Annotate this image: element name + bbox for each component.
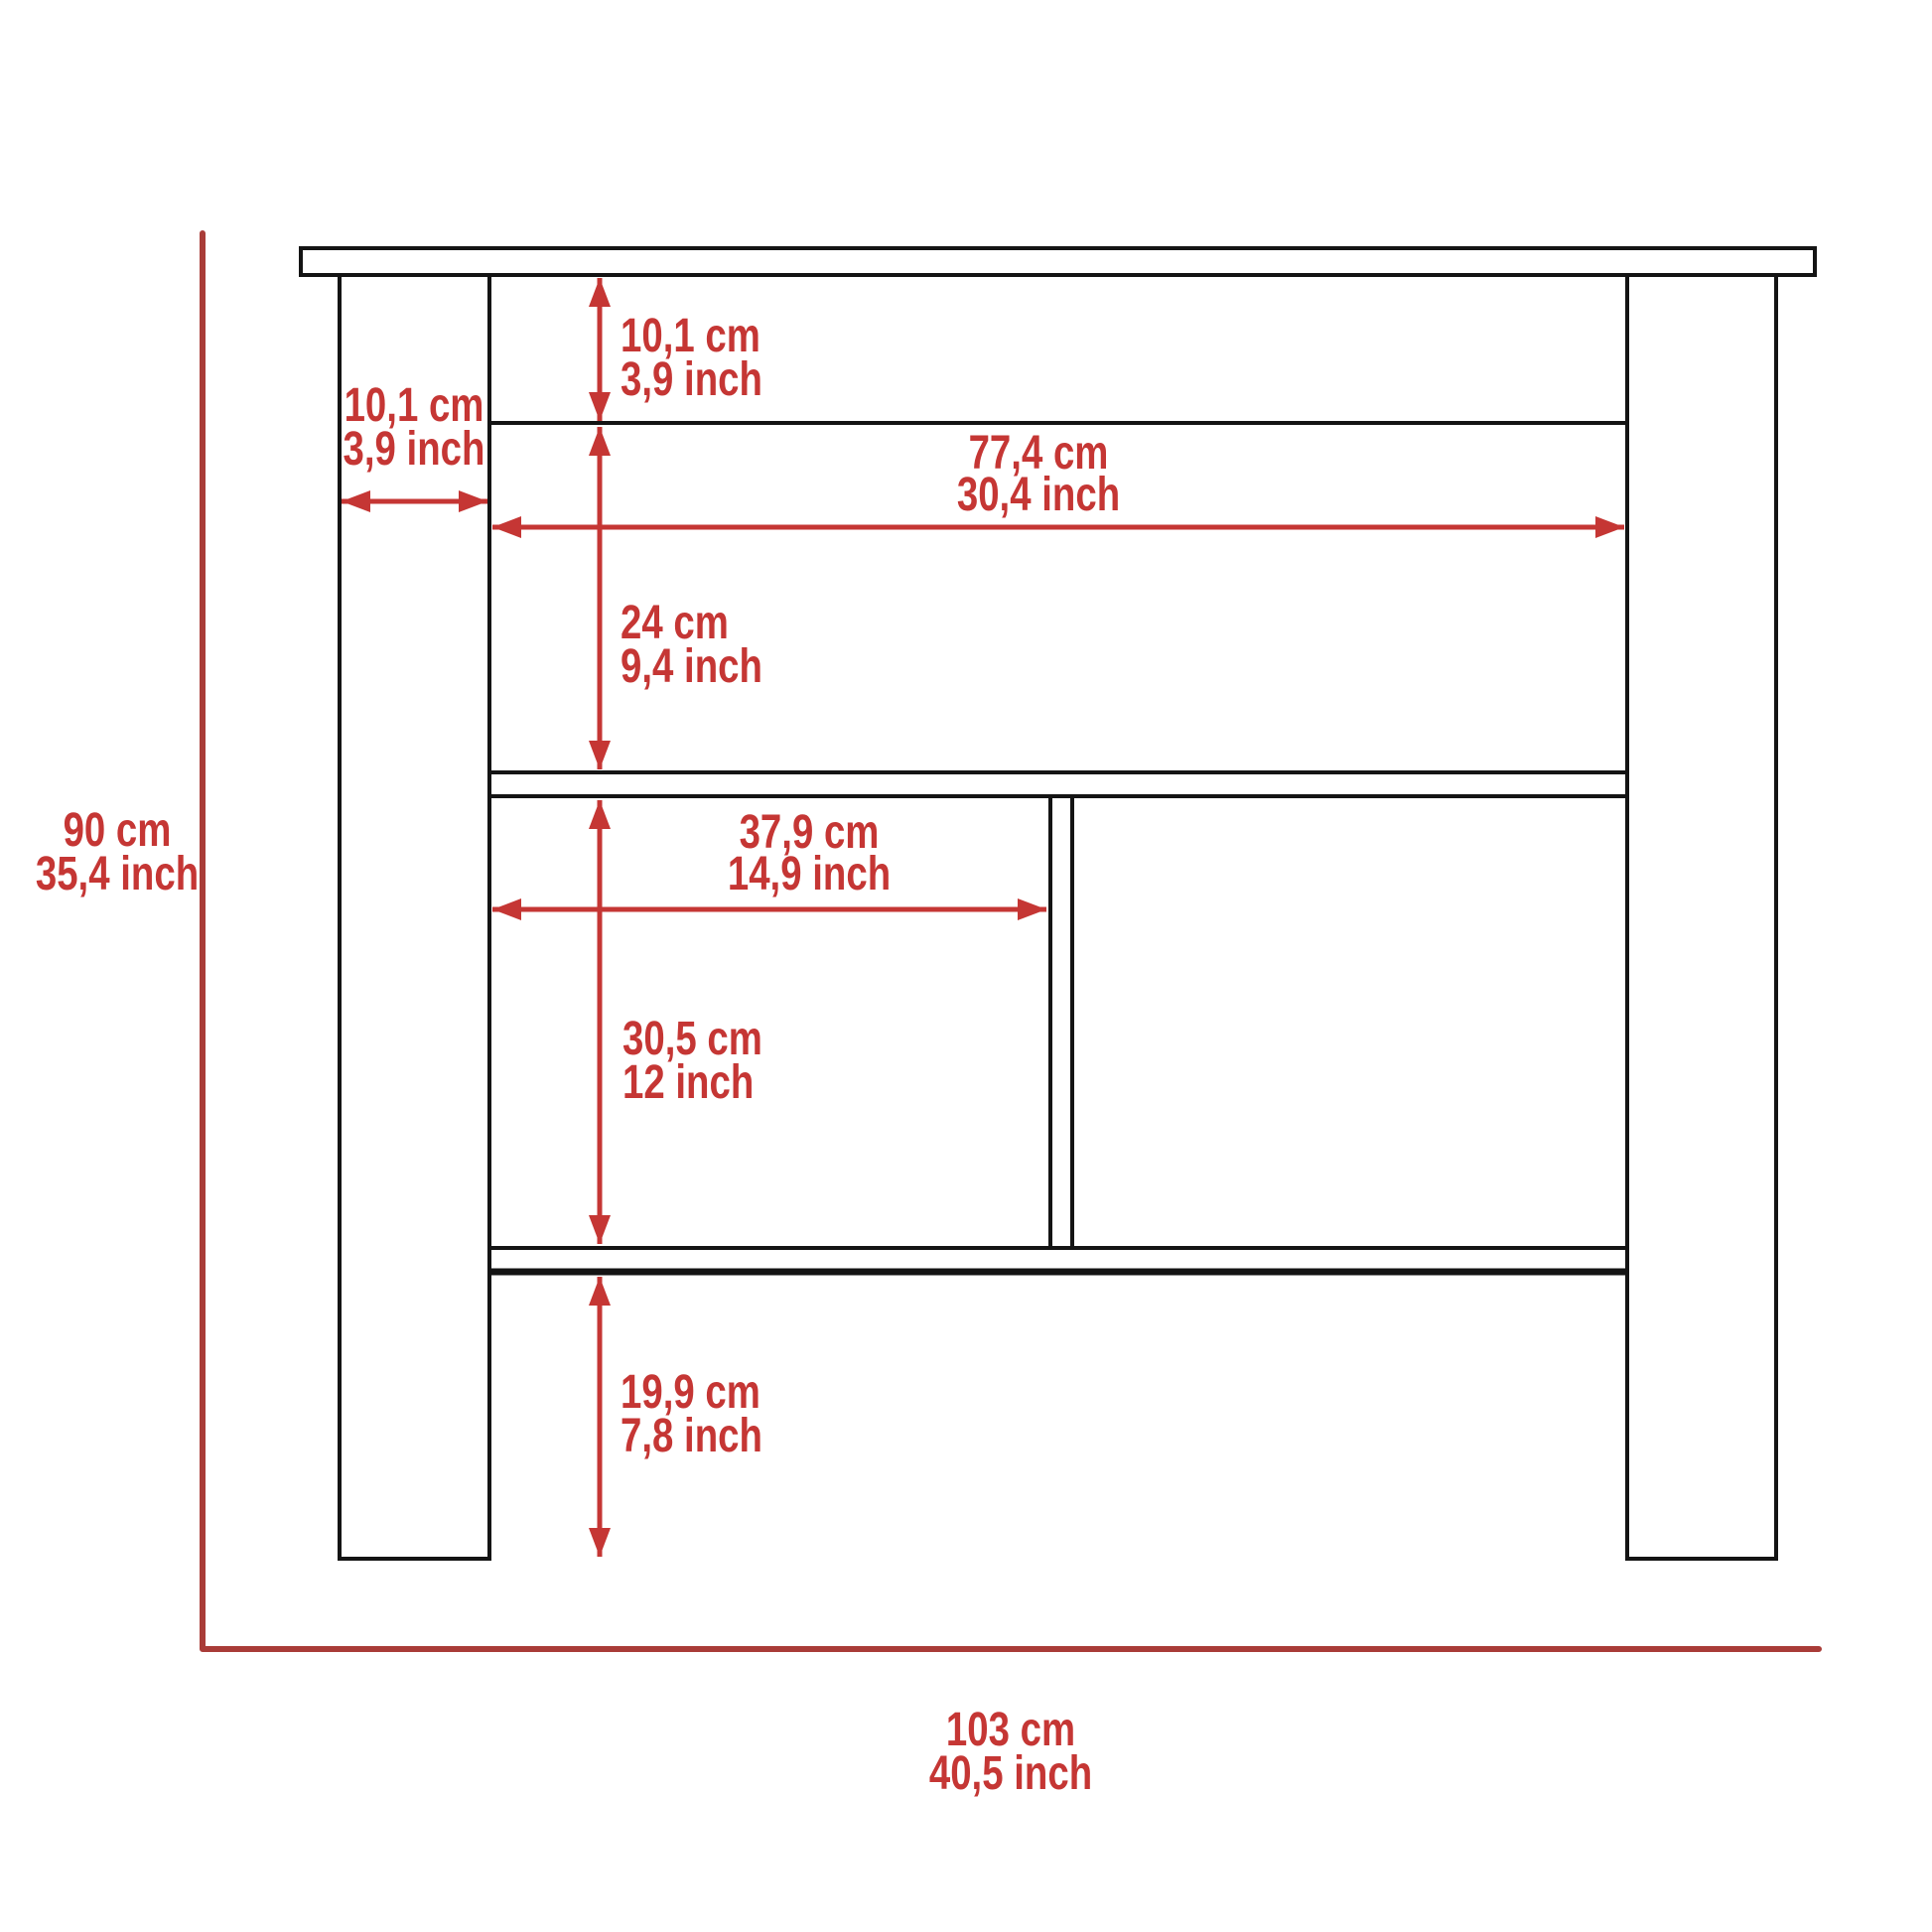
label-top-rail-height-inch: 3,9 inch [621, 353, 762, 406]
label-overall-width-inch: 40,5 inch [929, 1747, 1092, 1800]
label-overall-height: 90 cm 35,4 inch [36, 804, 199, 900]
dimension-diagram-canvas: 10,1 cm 3,9 inch 10,1 cm 3,9 inch 77,4 c… [0, 0, 1932, 1932]
label-upper-section-height-inch: 9,4 inch [621, 640, 762, 693]
label-overall-width: 103 cm 40,5 inch [929, 1704, 1092, 1800]
label-bottom-clearance: 19,9 cm 7,8 inch [621, 1366, 762, 1462]
label-leg-width: 10,1 cm 3,9 inch [344, 379, 485, 476]
table-top [301, 248, 1815, 275]
label-left-compartment-width: 37,9 cm 14,9 inch [728, 806, 891, 900]
label-upper-section-height: 24 cm 9,4 inch [621, 597, 762, 693]
label-bottom-clearance-inch: 7,8 inch [621, 1410, 762, 1462]
label-middle-section-height-inch: 12 inch [622, 1056, 754, 1109]
dimension-labels: 10,1 cm 3,9 inch 10,1 cm 3,9 inch 77,4 c… [36, 310, 1120, 1800]
label-left-compartment-width-inch: 14,9 inch [728, 848, 891, 900]
label-top-rail-height: 10,1 cm 3,9 inch [621, 310, 762, 406]
label-inner-width: 77,4 cm 30,4 inch [957, 427, 1120, 521]
diagram-page: 10,1 cm 3,9 inch 10,1 cm 3,9 inch 77,4 c… [0, 0, 1932, 1932]
label-inner-width-inch: 30,4 inch [957, 469, 1120, 521]
label-middle-section-height: 30,5 cm 12 inch [622, 1013, 762, 1109]
right-leg [1627, 275, 1776, 1559]
label-leg-width-inch: 3,9 inch [344, 423, 485, 476]
label-overall-height-inch: 35,4 inch [36, 848, 199, 900]
